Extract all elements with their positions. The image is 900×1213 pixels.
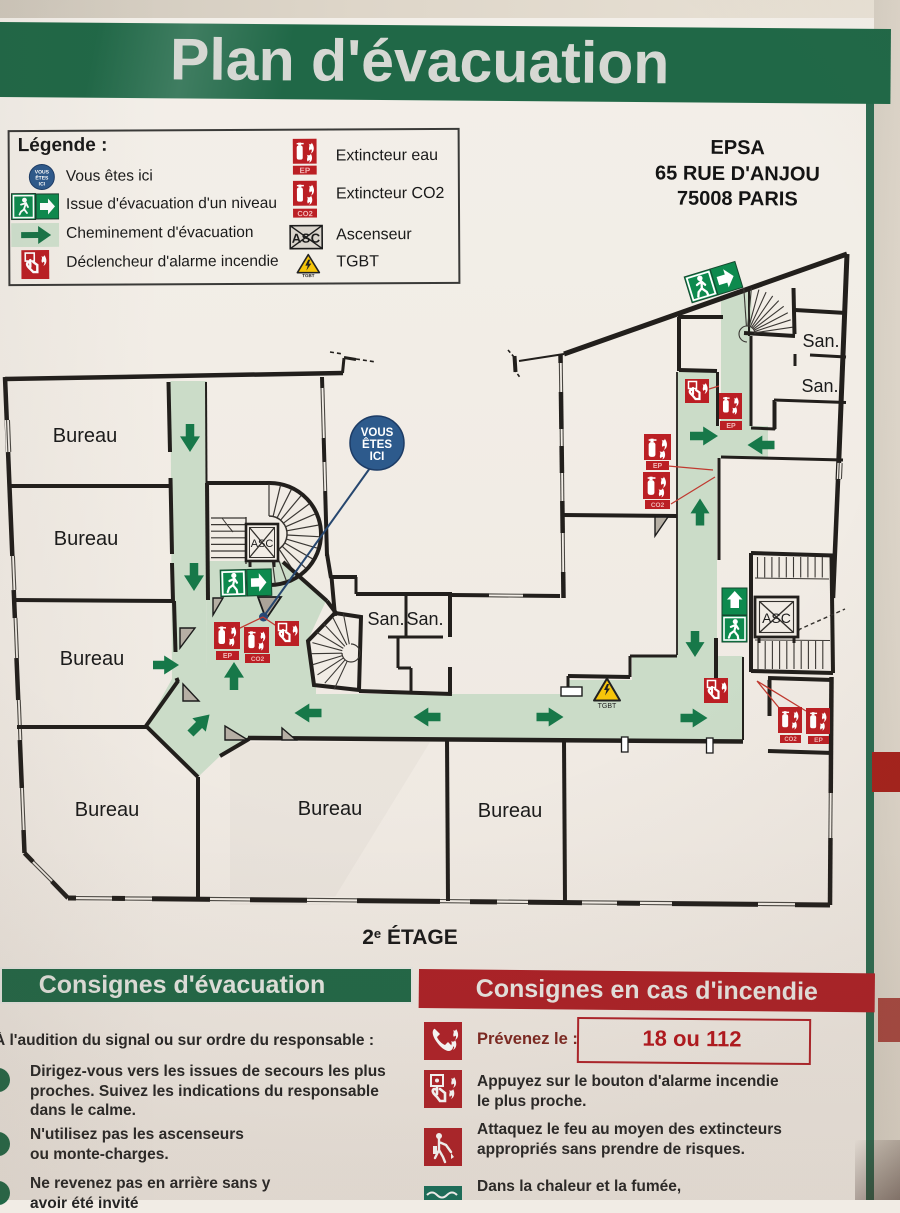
svg-text:ASC: ASC: [762, 610, 791, 626]
svg-text:ICI: ICI: [370, 451, 385, 463]
svg-text:San.: San.: [802, 331, 839, 351]
svg-text:EP: EP: [299, 166, 310, 175]
svg-text:CO2: CO2: [297, 209, 312, 218]
svg-text:ÊTES: ÊTES: [362, 438, 392, 451]
svg-text:VOUS: VOUS: [361, 427, 394, 439]
svg-text:EP: EP: [726, 423, 736, 430]
svg-text:Bureau: Bureau: [53, 425, 118, 447]
svg-text:San.: San.: [367, 609, 404, 629]
svg-text:Bureau: Bureau: [54, 528, 119, 550]
svg-text:CO2: CO2: [651, 502, 665, 509]
svg-text:Bureau: Bureau: [75, 799, 140, 821]
svg-text:EP: EP: [223, 653, 233, 660]
svg-text:TGBT: TGBT: [598, 703, 617, 710]
svg-text:Bureau: Bureau: [60, 648, 125, 670]
svg-text:EP: EP: [814, 737, 823, 744]
svg-text:CO2: CO2: [784, 737, 797, 743]
svg-text:Bureau: Bureau: [298, 798, 363, 820]
svg-text:CO2: CO2: [251, 656, 265, 663]
svg-text:EP: EP: [653, 463, 663, 470]
svg-text:ÊTES: ÊTES: [35, 173, 49, 181]
svg-text:San.: San.: [406, 609, 443, 629]
svg-text:Bureau: Bureau: [478, 800, 543, 822]
svg-text:ASC: ASC: [251, 538, 274, 550]
svg-text:ICI: ICI: [39, 181, 46, 187]
svg-text:San.: San.: [801, 376, 838, 396]
